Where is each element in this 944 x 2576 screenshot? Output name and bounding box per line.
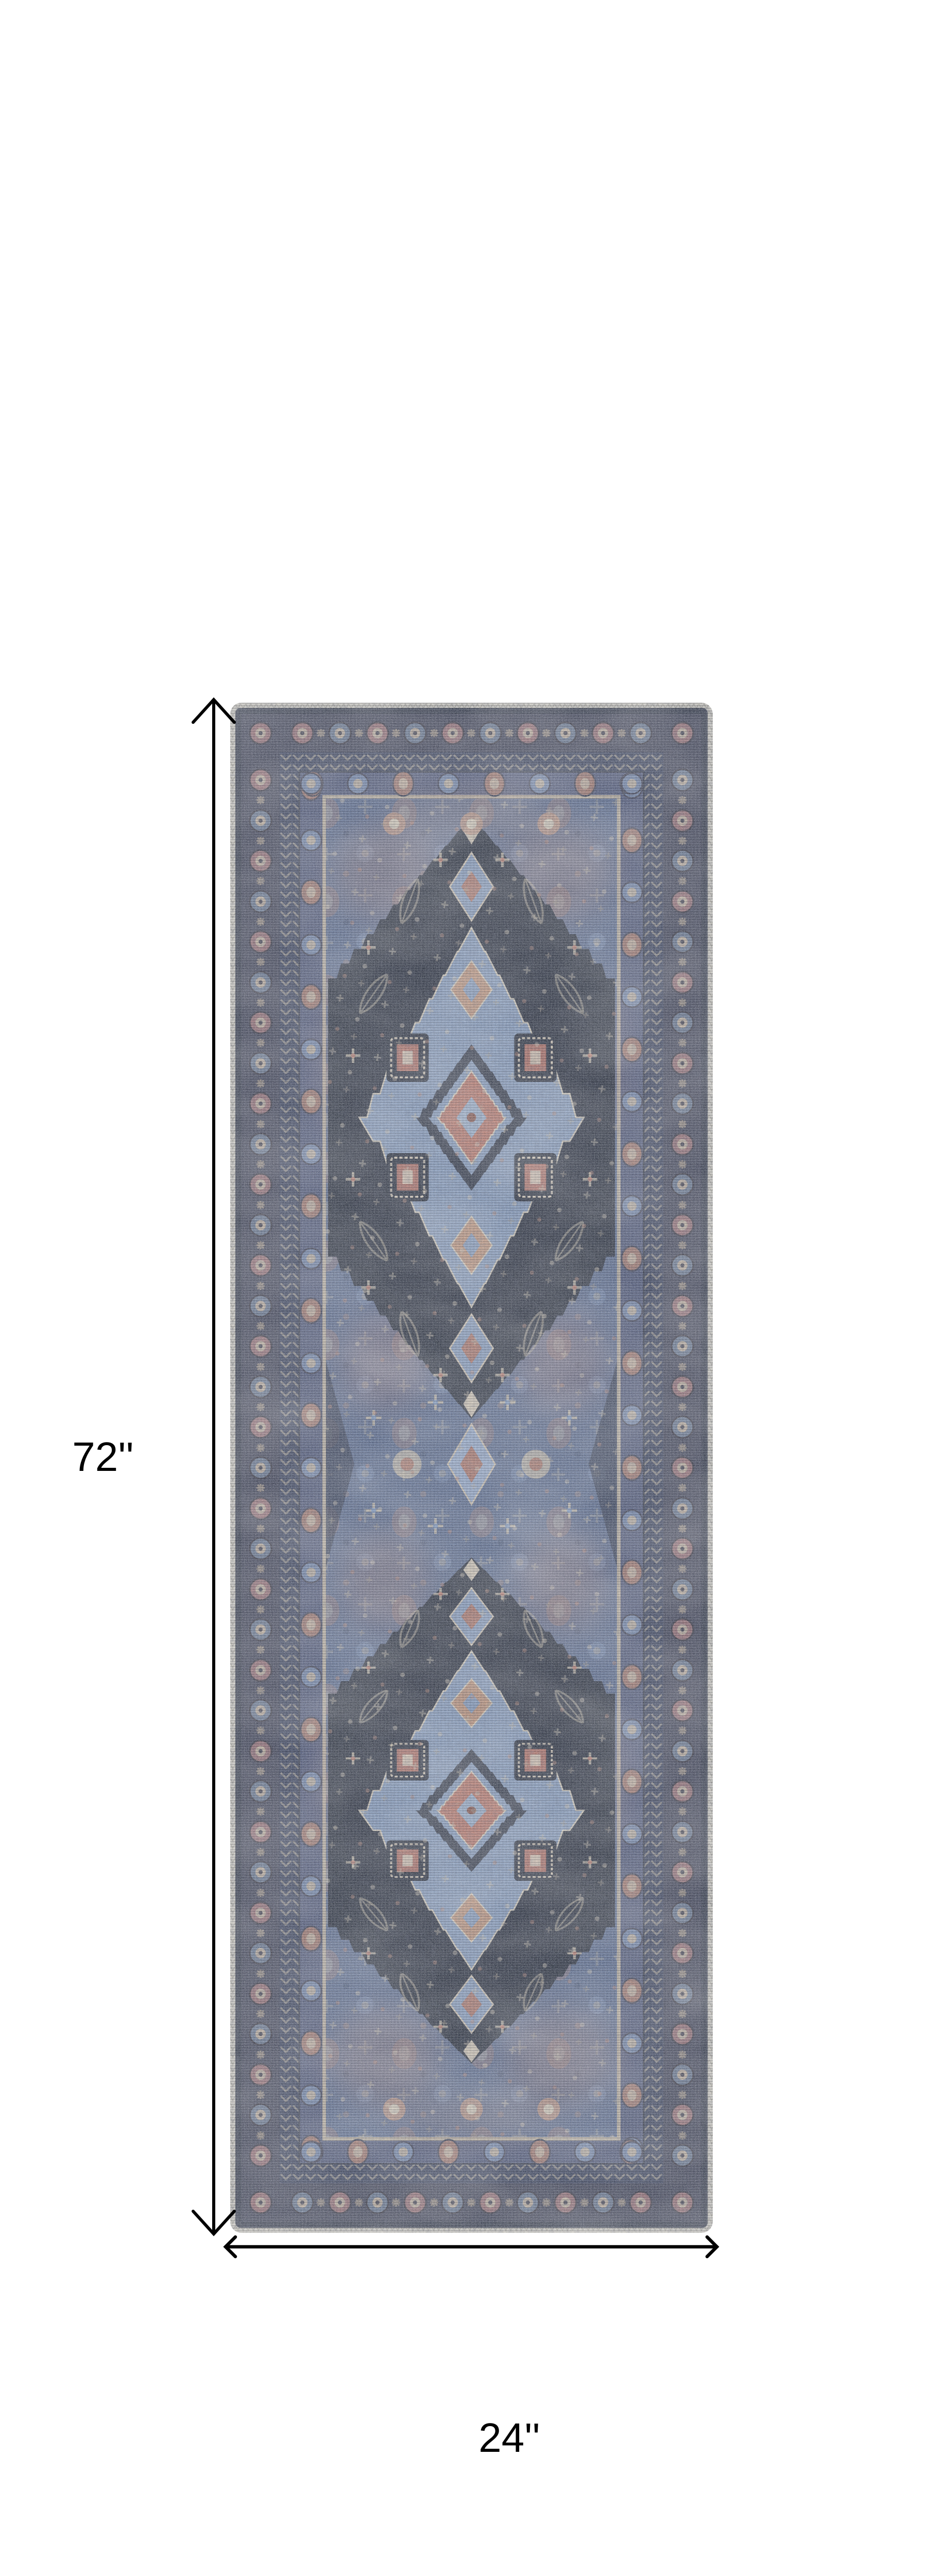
svg-text:72'': 72'' — [72, 1434, 134, 1480]
svg-text:24'': 24'' — [478, 2415, 540, 2461]
